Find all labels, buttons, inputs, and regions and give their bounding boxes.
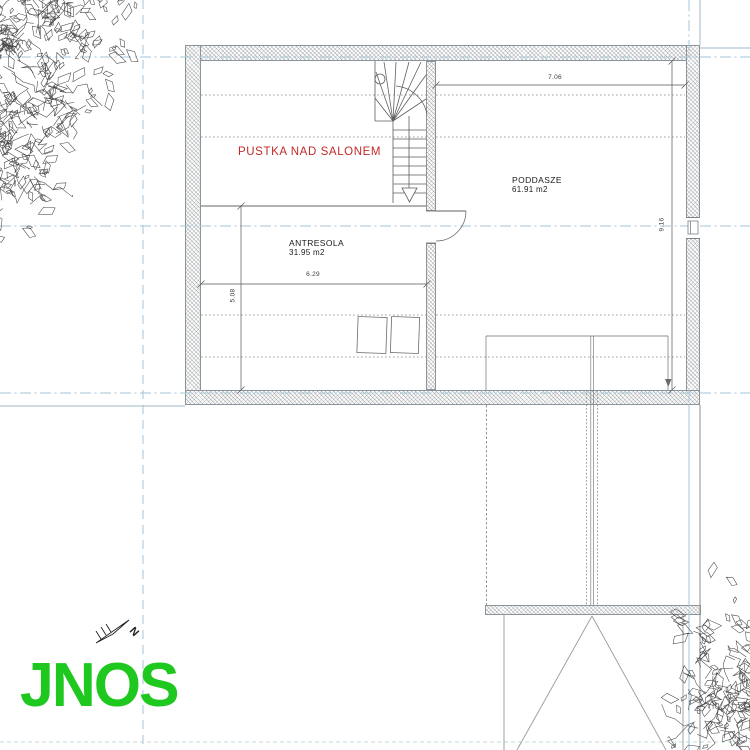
north-label: N <box>127 625 141 639</box>
skylight-1 <box>357 317 387 354</box>
room-poddasze-name: PODDASZE <box>512 175 562 185</box>
floor-plan-sheet: N PUSTKA NAD SALONEM PODDASZE 61.91 m2 A… <box>0 0 750 750</box>
void-label: PUSTKA NAD SALONEM <box>238 146 381 158</box>
staircase <box>375 61 427 203</box>
lower-roof-outline <box>486 336 672 605</box>
room-antresola-area: 31.95 m2 <box>289 248 344 257</box>
watermark-text: JNOS <box>20 650 178 721</box>
extension-below <box>487 390 701 750</box>
skylights <box>357 317 420 354</box>
dim-attic-depth: 9.16 <box>659 205 666 245</box>
vegetation-bottom-right <box>661 562 750 750</box>
door <box>426 211 466 243</box>
plan-linework: N <box>0 0 750 750</box>
dim-mezzanine-depth: 5.08 <box>230 276 237 316</box>
room-poddasze-area: 61.91 m2 <box>512 185 562 194</box>
room-antresola: ANTRESOLA 31.95 m2 <box>289 238 344 257</box>
dim-attic-width: 7.06 <box>535 74 575 81</box>
room-antresola-name: ANTRESOLA <box>289 238 344 248</box>
vegetation-top-left <box>0 0 138 242</box>
gable-lines <box>517 616 666 750</box>
window-detail <box>688 221 698 234</box>
skylight-2 <box>390 317 419 354</box>
north-arrow: N <box>96 620 141 643</box>
room-poddasze: PODDASZE 61.91 m2 <box>512 175 562 194</box>
slope-arrow <box>665 379 672 387</box>
stair-direction-arrow <box>402 188 417 202</box>
dim-mezzanine-width: 6.29 <box>293 271 333 278</box>
